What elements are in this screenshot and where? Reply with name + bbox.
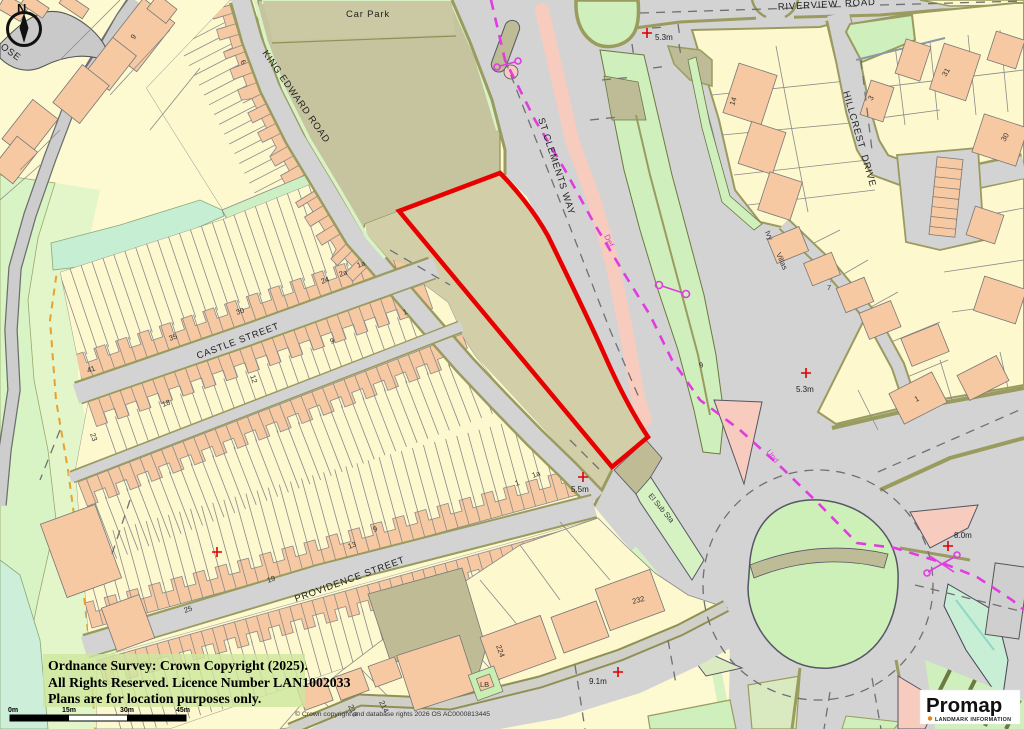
svg-text:15m: 15m [62, 707, 76, 714]
svg-text:30m: 30m [120, 707, 134, 714]
svg-text:45m: 45m [176, 707, 190, 714]
svg-text:Car Park: Car Park [346, 9, 390, 20]
svg-text:7: 7 [827, 283, 831, 292]
svg-text:Plans are for location purpose: Plans are for location purposes only. [48, 691, 261, 706]
svg-text:5.5m: 5.5m [571, 485, 589, 494]
svg-text:8.0m: 8.0m [954, 531, 972, 540]
svg-text:Ordnance Survey: Crown Copyrig: Ordnance Survey: Crown Copyright (2025). [48, 658, 308, 674]
svg-text:LB: LB [480, 680, 489, 689]
svg-text:LANDMARK INFORMATION: LANDMARK INFORMATION [935, 717, 1011, 723]
svg-text:9.1m: 9.1m [589, 677, 607, 686]
svg-text:5.3m: 5.3m [796, 385, 814, 394]
svg-text:5.3m: 5.3m [655, 33, 673, 42]
svg-text:0m: 0m [8, 707, 18, 714]
svg-text:Promap: Promap [926, 694, 1002, 717]
svg-text:N: N [17, 1, 26, 16]
svg-text:© Crown copyright and database: © Crown copyright and database rights 20… [295, 710, 490, 718]
svg-text:All Rights Reserved. Licence N: All Rights Reserved. Licence Number LAN1… [48, 675, 351, 690]
